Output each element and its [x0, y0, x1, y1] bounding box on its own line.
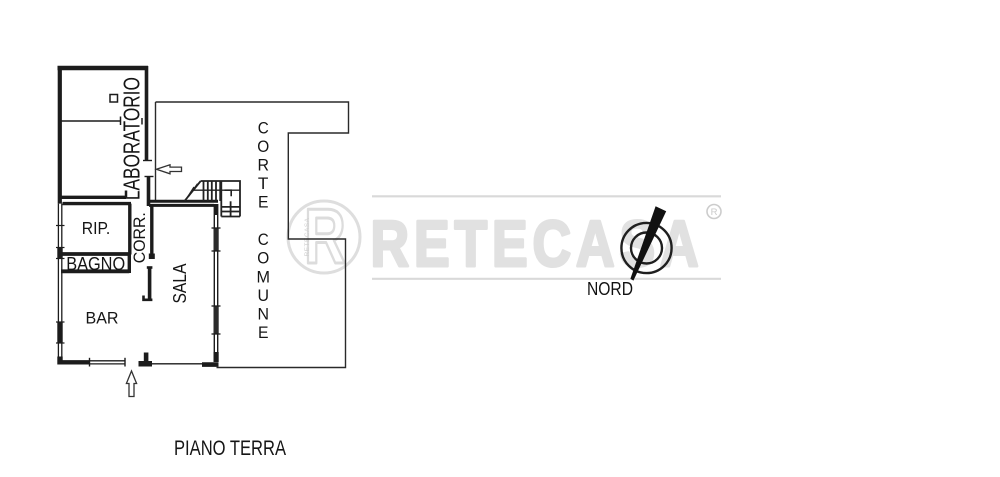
svg-text:PIANO TERRA: PIANO TERRA [174, 437, 286, 460]
svg-text:RETECASA: RETECASA [304, 217, 311, 256]
svg-text:SALA: SALA [170, 264, 190, 304]
svg-text:E: E [258, 193, 269, 212]
svg-text:E: E [258, 323, 269, 342]
svg-text:C: C [258, 230, 269, 249]
svg-text:C: C [258, 119, 269, 138]
svg-text:U: U [257, 286, 269, 305]
svg-text:N: N [257, 305, 269, 324]
svg-text:O: O [257, 249, 269, 268]
svg-text:T: T [258, 174, 269, 193]
svg-text:M: M [256, 267, 270, 286]
svg-text:O: O [257, 137, 269, 156]
svg-text:LABORATORIO: LABORATORIO [119, 77, 145, 200]
svg-text:CORR.: CORR. [130, 212, 149, 263]
svg-text:BAGNO: BAGNO [66, 254, 125, 274]
svg-text:R: R [711, 207, 718, 218]
svg-text:NORD: NORD [587, 279, 633, 299]
svg-text:R: R [257, 156, 269, 175]
svg-text:BAR: BAR [86, 308, 119, 327]
svg-text:RIP.: RIP. [82, 218, 111, 238]
